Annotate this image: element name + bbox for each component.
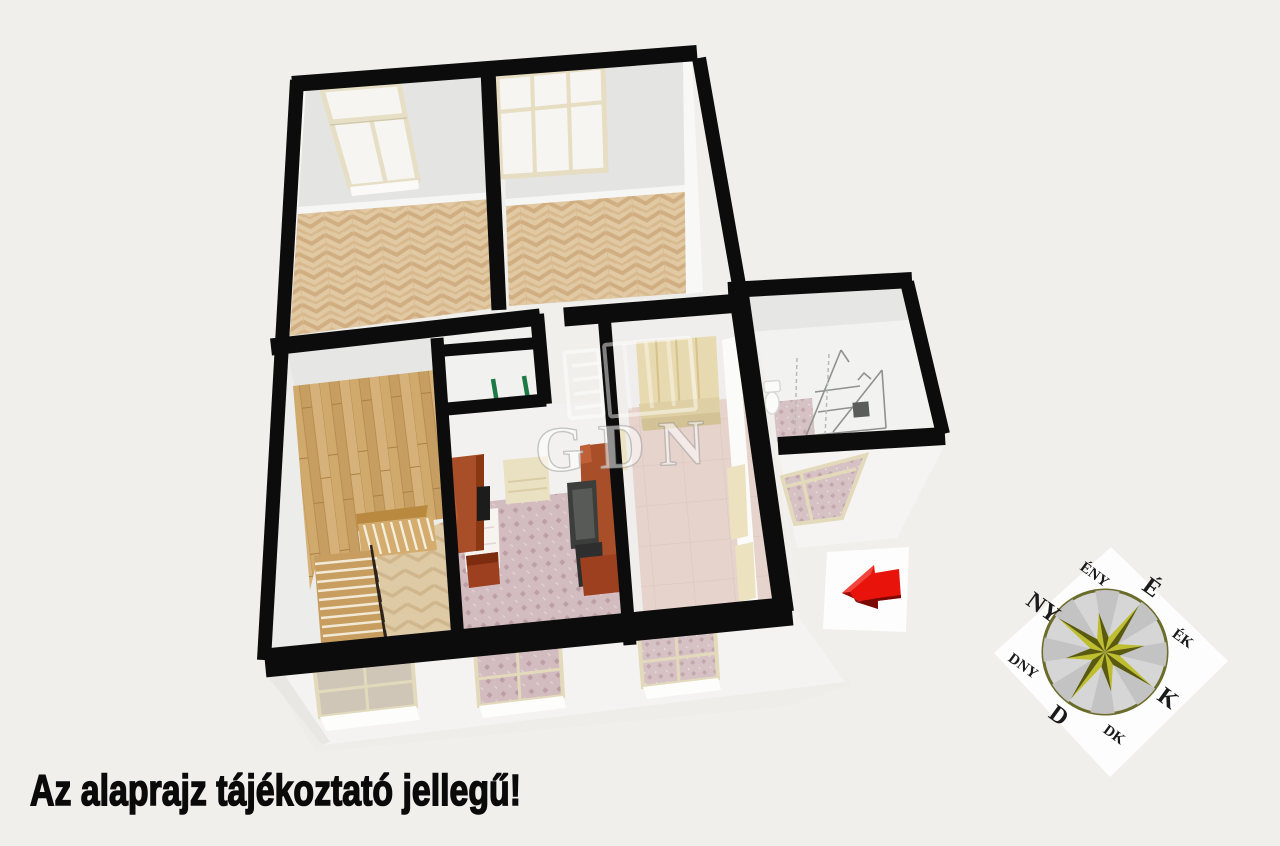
svg-text:GDN: GDN [533, 405, 721, 486]
svg-text:Az alaprajz tájékoztató jelleg: Az alaprajz tájékoztató jellegű! [30, 766, 521, 815]
